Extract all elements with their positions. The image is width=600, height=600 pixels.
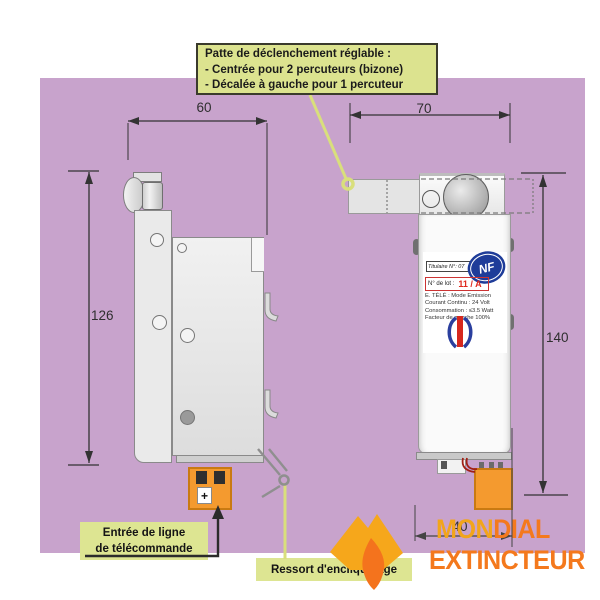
callout-line: - Décalée à gauche pour 1 percuteur — [205, 78, 436, 94]
entree-line1: Entrée de ligne — [103, 525, 185, 541]
lot-label: N° de lot : — [428, 281, 454, 287]
side-view-hole — [180, 328, 195, 343]
callout-line: - Centrée pour 2 percuteurs (bizone) — [205, 63, 436, 79]
side-view-top-slot — [251, 238, 264, 272]
terminal-pin — [214, 471, 225, 484]
side-view-hole — [150, 233, 164, 247]
polarity-plus-marker: + — [197, 487, 212, 504]
dimension-140-label: 140 — [546, 330, 582, 345]
nf-logo-text: NF — [477, 259, 496, 276]
front-view-release-tab — [348, 179, 420, 214]
side-view-hole — [177, 243, 187, 253]
callout-box: Patte de déclenchement réglable : - Cent… — [196, 43, 438, 95]
lot-value: 11 / A — [458, 279, 481, 289]
terminal-pin — [196, 471, 207, 484]
dimension-60-label: 60 — [180, 100, 228, 115]
lot-number-box: N° de lot : 11 / A — [425, 277, 489, 291]
callout-title: Patte de déclenchement réglable : — [205, 47, 436, 63]
side-view-mounting-plate — [134, 210, 172, 463]
front-view-terminal-block — [474, 468, 513, 510]
spec-line: E. TÉLÉ : Mode Emission — [425, 293, 507, 300]
device-rating-label: Titulaire N°: 07 NF N° de lot : 11 / A E… — [423, 252, 507, 353]
brand-dial: DIAL — [493, 514, 550, 544]
dimension-126-label: 126 — [91, 308, 131, 323]
certification-emblem-icon — [445, 314, 475, 350]
side-view-screw — [180, 410, 195, 425]
entree-ligne-label: Entrée de ligne de télécommande — [80, 522, 208, 560]
entree-line2: de télécommande — [95, 541, 192, 557]
titulaire-box: Titulaire N°: 07 — [426, 261, 472, 272]
spec-line: Courant Continu : 24 Volt — [425, 300, 507, 307]
side-view-hole — [152, 315, 167, 330]
side-view-base — [176, 455, 264, 463]
brand-word-mondial: MONDIAL — [436, 514, 550, 544]
diagram-page: + Titulaire N°: 07 NF N° de lot : 11 / A… — [0, 0, 600, 600]
front-view-small-hole — [422, 190, 440, 208]
side-view-bolt — [142, 182, 163, 210]
flame-icon — [322, 505, 432, 597]
front-view-lug-slot — [441, 461, 447, 469]
dimension-70-label: 70 — [400, 101, 448, 116]
brand-word-extincteur: EXTINCTEUR — [429, 545, 585, 575]
plus-sign: + — [201, 489, 208, 503]
brand-mon: MON — [436, 514, 493, 544]
